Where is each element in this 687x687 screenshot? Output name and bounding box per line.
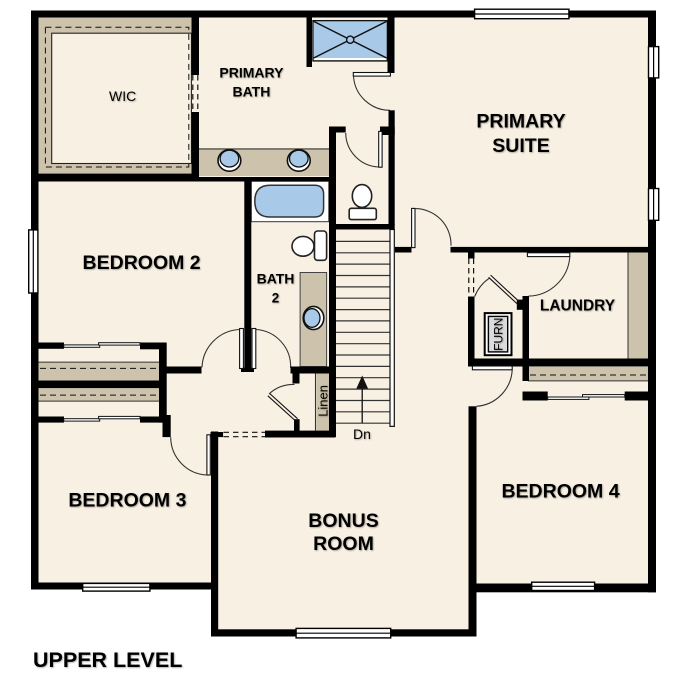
svg-text:2: 2 bbox=[272, 291, 280, 306]
svg-text:PRIMARY: PRIMARY bbox=[476, 111, 565, 133]
svg-text:Linen: Linen bbox=[316, 385, 331, 417]
svg-text:SUITE: SUITE bbox=[492, 135, 549, 157]
svg-text:WIC: WIC bbox=[109, 88, 136, 104]
svg-text:Dn: Dn bbox=[353, 426, 371, 442]
svg-text:UPPER LEVEL: UPPER LEVEL bbox=[33, 648, 182, 672]
svg-text:LAUNDRY: LAUNDRY bbox=[540, 298, 616, 315]
svg-text:ROOM: ROOM bbox=[313, 533, 374, 555]
svg-text:BATH: BATH bbox=[232, 84, 270, 100]
svg-text:BEDROOM 4: BEDROOM 4 bbox=[501, 480, 619, 502]
svg-text:PRIMARY: PRIMARY bbox=[219, 64, 284, 80]
svg-text:BEDROOM 2: BEDROOM 2 bbox=[83, 252, 201, 274]
svg-text:BATH: BATH bbox=[257, 271, 295, 287]
svg-text:FURN: FURN bbox=[492, 318, 506, 351]
svg-text:BEDROOM 3: BEDROOM 3 bbox=[68, 490, 186, 512]
svg-text:BONUS: BONUS bbox=[308, 510, 378, 532]
